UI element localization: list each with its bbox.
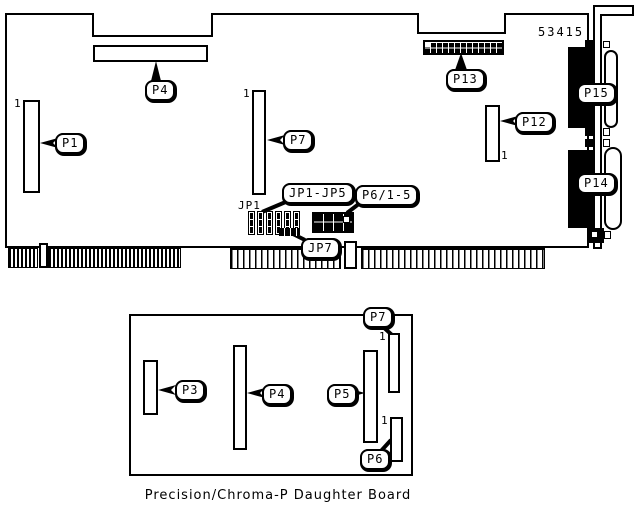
connector-p12: [485, 105, 500, 162]
callout-p6-1-5: P6/1-5: [355, 185, 418, 206]
daughter-p7-pin1-label: 1: [379, 331, 386, 342]
edge-fingers-group-1: [8, 248, 38, 268]
connector-p7: [252, 90, 266, 195]
edge-fingers-group-2: [48, 248, 181, 268]
jp1-label: JP1: [238, 199, 261, 212]
bracket-screw-pad: [585, 139, 593, 147]
edge-fingers-group-4: [361, 248, 545, 269]
daughter-board-caption: Precision/Chroma-P Daughter Board: [118, 488, 438, 503]
p6-pin-marker: [343, 216, 350, 223]
p13-pin1-marker: [425, 42, 430, 47]
daughter-connector-p3: [143, 360, 158, 415]
connector-p6-1-5-block: [312, 212, 354, 233]
p1-pin1-label: 1: [14, 98, 21, 109]
callout-p1: P1: [55, 133, 85, 154]
callout-p15: P15: [577, 83, 616, 104]
daughter-connector-p5: [363, 350, 378, 443]
jumper-column: [257, 211, 264, 235]
callout-p13: P13: [446, 69, 485, 90]
callout-p7: P7: [283, 130, 313, 151]
callout-daughter-p3: P3: [175, 380, 205, 401]
callout-daughter-p6: P6: [360, 449, 390, 470]
bracket-screw-pad: [585, 128, 593, 136]
p12-pin1-label: 1: [501, 150, 508, 161]
p7-pin1-label: 1: [243, 88, 250, 99]
edge-key-tab-1: [39, 243, 48, 268]
bracket-screw-pad: [585, 40, 593, 47]
callout-daughter-p4: P4: [262, 384, 292, 405]
bracket-screw-hole: [603, 128, 610, 136]
callout-jp7: JP7: [301, 238, 340, 259]
daughter-connector-p6: [390, 417, 403, 462]
connector-p13-header: [423, 40, 504, 55]
jumper-column: [266, 211, 273, 235]
callout-p4: P4: [145, 80, 175, 101]
bracket-foot-notch: [592, 232, 597, 237]
bracket-screw-hole: [603, 139, 610, 147]
callout-jp1-jp5: JP1-JP5: [282, 183, 354, 204]
jumper-column: [248, 211, 255, 235]
connector-p4: [93, 45, 208, 62]
bracket-screw-hole: [604, 231, 611, 239]
edge-key-tab-2: [344, 241, 357, 269]
callout-p12: P12: [515, 112, 554, 133]
pcb-layout-diagram: 53415 JP1 1 1 1 P1 P4 P7 P12 P13 P15 P14…: [0, 0, 637, 513]
daughter-connector-p4: [233, 345, 247, 450]
daughter-p6-pin1-label: 1: [381, 415, 388, 426]
connector-p1: [23, 100, 40, 193]
board-part-number: 53415: [538, 25, 584, 39]
bracket-screw-hole: [603, 41, 610, 48]
callout-p14: P14: [577, 173, 616, 194]
callout-daughter-p7: P7: [363, 307, 393, 328]
jumper-jp7-pads: [279, 228, 299, 236]
daughter-connector-p7: [388, 333, 400, 393]
callout-daughter-p5: P5: [327, 384, 357, 405]
